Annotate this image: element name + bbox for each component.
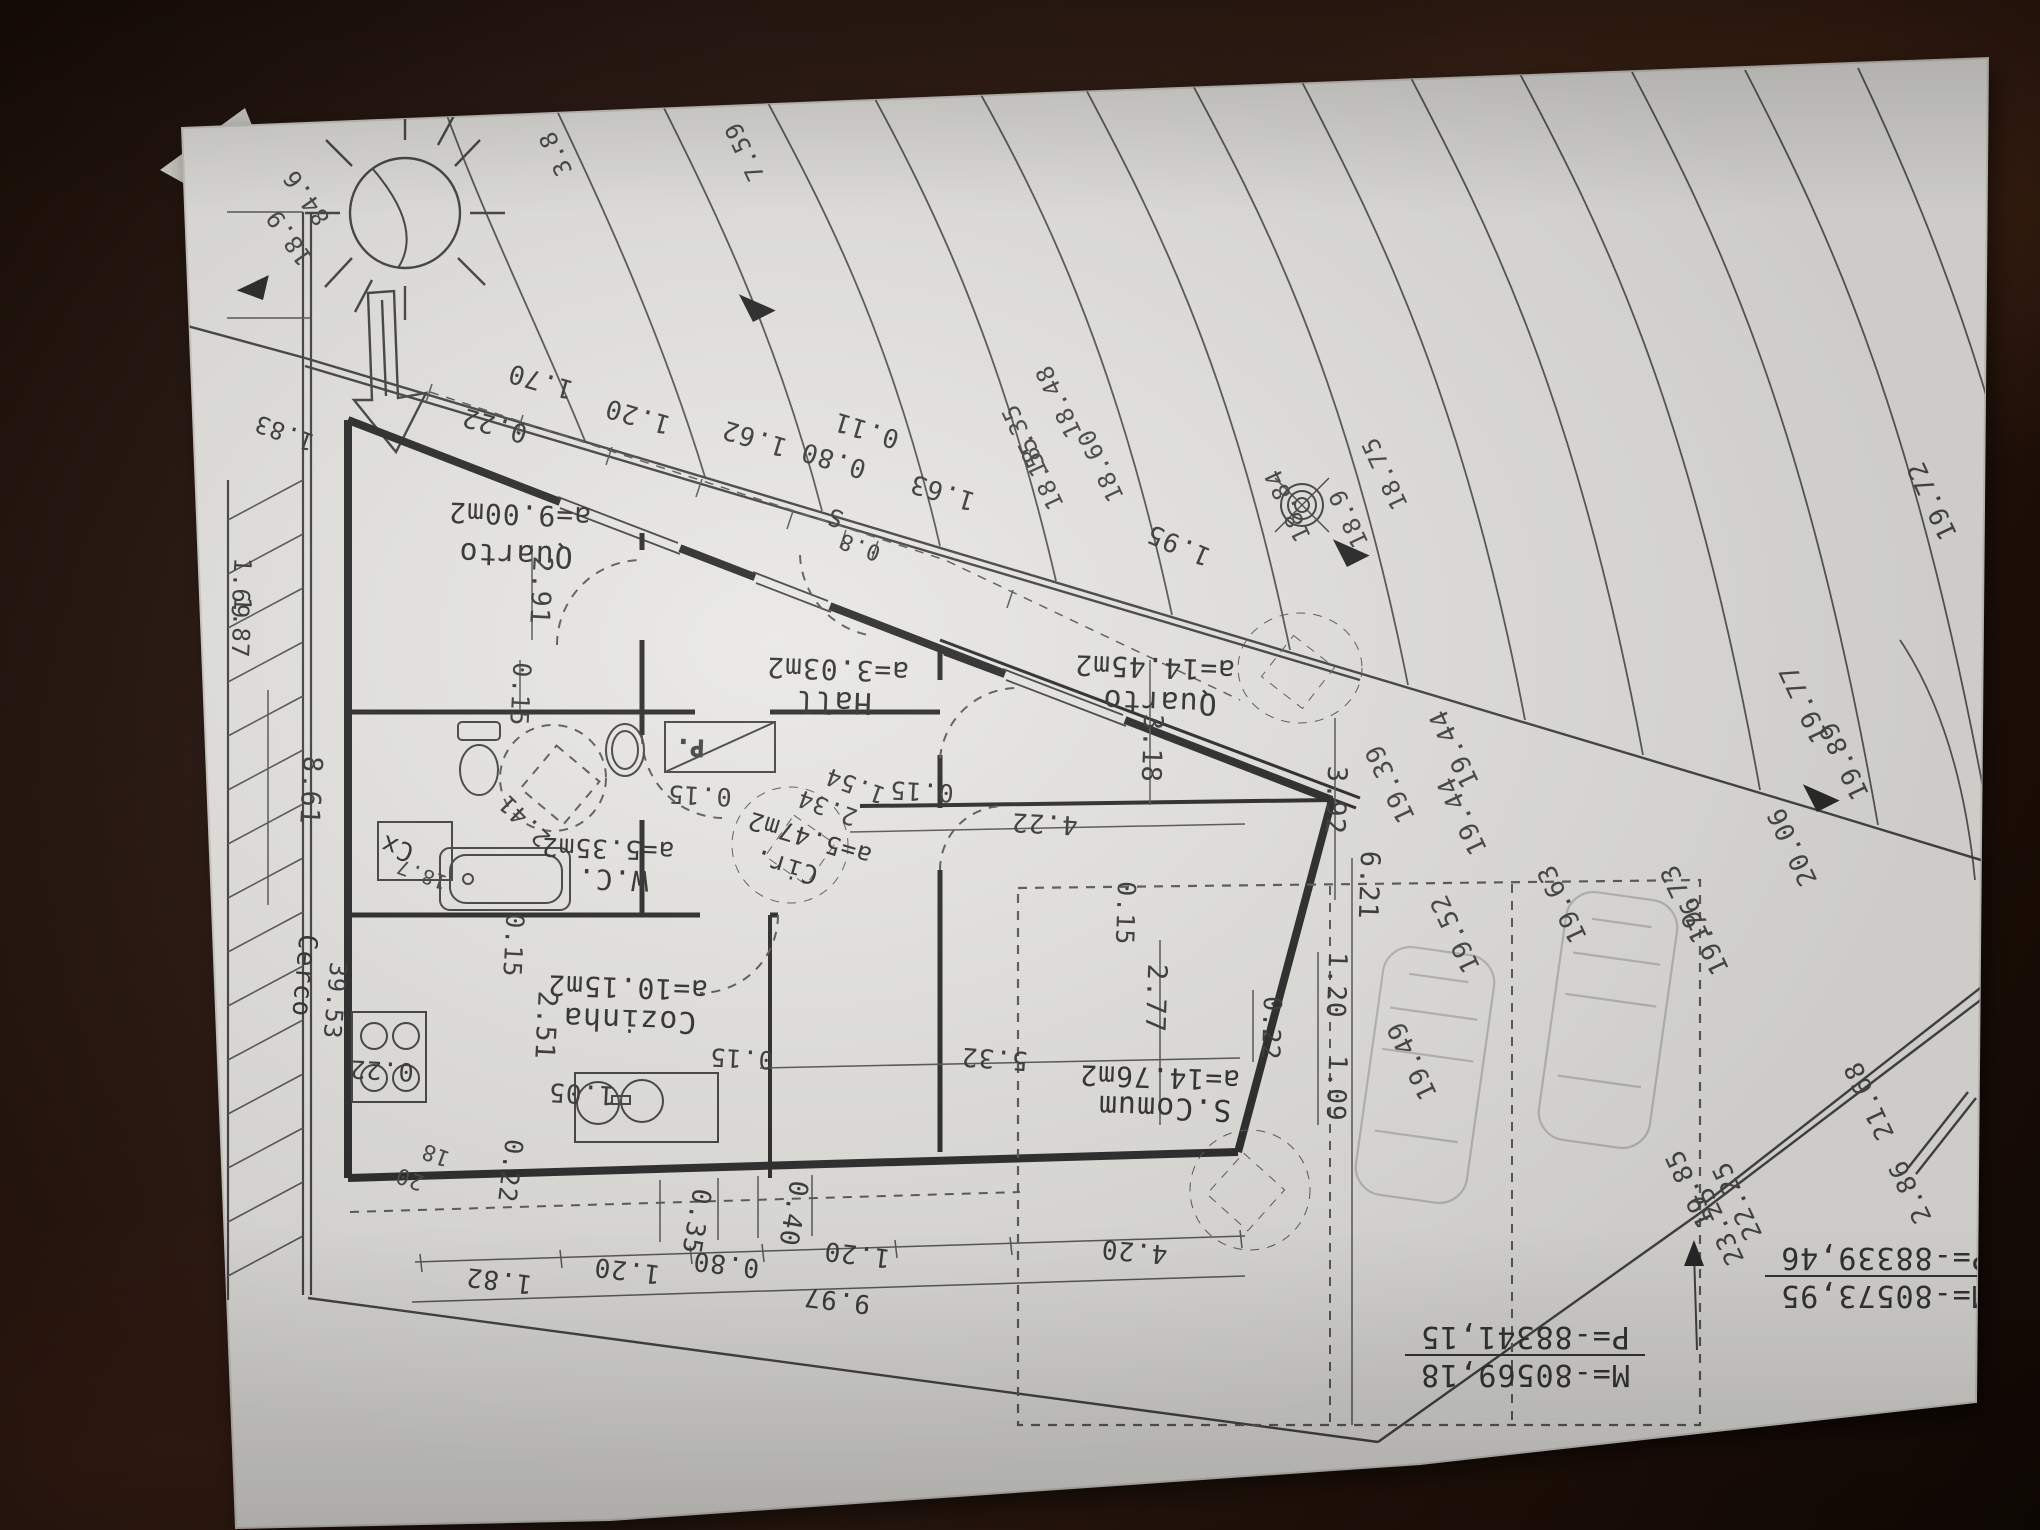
plan-label-6.21: 6.21 xyxy=(1352,850,1385,920)
floor-plan-drawing: P. xyxy=(0,0,2040,1530)
room-name-hall: Hall xyxy=(795,683,872,721)
svg-text:P=-88339,46: P=-88339,46 xyxy=(1780,1240,1990,1275)
plan-label-4.20: 4.20 xyxy=(1100,1233,1169,1269)
room-name-cozinha: Cozinha xyxy=(562,1000,697,1040)
plan-label-2.91: 2.91 xyxy=(523,555,558,626)
plan-label-0.15: 0.15 xyxy=(497,913,529,979)
svg-text:P.: P. xyxy=(675,734,704,760)
room-area-hall: a=3.03m2 xyxy=(766,651,910,689)
plan-label-0.15: 0.15 xyxy=(667,779,733,811)
plan-label-4.22: 4.22 xyxy=(1011,806,1079,839)
svg-text:M=-80573,95: M=-80573,95 xyxy=(1780,1278,1990,1313)
survey-coordinate-label: M=-80569,18P=-88341,15 xyxy=(1405,1319,1645,1392)
room-area-wc: a=5.35m2 xyxy=(541,831,675,866)
survey-coordinate-label: M=-80573,95P=-88339,46 xyxy=(1765,1240,2005,1313)
room-name-scomum: S.Comum xyxy=(1097,1088,1232,1128)
room-area-quarto-14: a=14.45m2 xyxy=(1074,648,1236,687)
plan-label-2.77: 2.77 xyxy=(1139,963,1172,1033)
svg-text:P=-88341,15: P=-88341,15 xyxy=(1420,1319,1630,1354)
plan-label-0.22: 0.22 xyxy=(1256,996,1287,1061)
plan-label-1.05: 1.05 xyxy=(548,1076,616,1109)
paper-sheet xyxy=(160,58,1988,1528)
plan-label-0.15: 0.15 xyxy=(1110,881,1141,946)
svg-text:M=-80569,18: M=-80569,18 xyxy=(1420,1357,1630,1392)
plan-label-0.15: 0.15 xyxy=(504,662,536,728)
plan-label-5.32: 5.32 xyxy=(960,1041,1029,1076)
photo-of-floor-plan: P. xyxy=(0,0,2040,1530)
plan-label-3.18: 3.18 xyxy=(1135,713,1168,783)
plan-label-8.61: 8.61 xyxy=(293,755,328,826)
plan-label-1.20: 1.20 xyxy=(1320,951,1352,1019)
plan-label-0.15: 0.15 xyxy=(709,1042,775,1074)
plan-label-0.15: 0.15 xyxy=(889,775,955,807)
plan-label-3.92: 3.92 xyxy=(1319,765,1352,835)
plan-label-1.87: 1.87 xyxy=(225,596,256,659)
room-area-quarto-9: a=9.00m2 xyxy=(448,496,592,534)
room-name-wc: W.C. xyxy=(576,862,649,897)
plan-label-1.09: 1.09 xyxy=(1320,1054,1352,1122)
plan-label-2.51: 2.51 xyxy=(528,990,563,1061)
plan-label-0.22: 0.22 xyxy=(349,1054,415,1086)
